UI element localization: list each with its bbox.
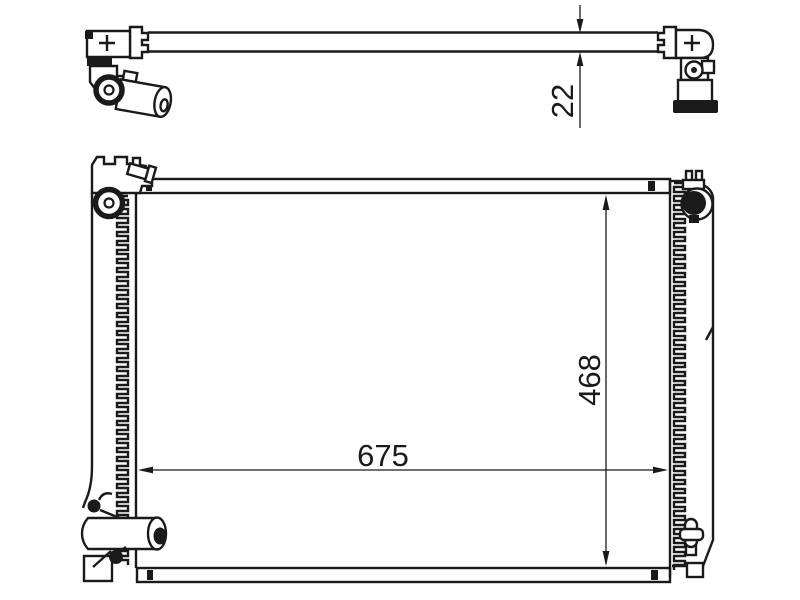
arrow-up-icon: [577, 52, 584, 66]
clip-bolt: [88, 500, 101, 513]
drawing-svg: 22: [0, 0, 800, 600]
header-clip: [147, 570, 153, 580]
top-profile-view: 22: [85, 5, 718, 128]
bracket-dark-band: [87, 57, 112, 66]
arrow-left-icon: [138, 467, 153, 474]
arrow-down-icon: [577, 19, 584, 33]
mounting-bracket-top-left: [92, 157, 156, 217]
thickness-label: 22: [545, 84, 580, 118]
bracket-corner-block: [85, 31, 93, 39]
left-flange: [130, 27, 148, 58]
right-flange: [658, 27, 676, 58]
hose-pipe: [116, 71, 175, 119]
right-filler-fitting: [658, 27, 718, 113]
cap-bracket: [683, 171, 704, 189]
height-label: 468: [572, 354, 607, 406]
core-profile: [148, 33, 658, 52]
dimension-thickness: 22: [545, 5, 583, 128]
width-label: 675: [357, 438, 409, 473]
filler-cap-profile: [673, 100, 718, 113]
dimension-width: 675: [138, 438, 668, 473]
filler-body: [678, 80, 712, 102]
front-view: 675 468: [82, 157, 713, 582]
neck-tab: [702, 61, 714, 73]
outlet-bolt: [109, 550, 123, 564]
arrow-up-icon: [603, 195, 610, 210]
tank-foot: [687, 563, 703, 577]
core-fin-strip-left: [117, 196, 128, 565]
radiator-technical-drawing: 22: [0, 0, 800, 600]
grommet-hole: [105, 199, 114, 208]
top-header: [137, 179, 670, 193]
pipe-ring-hole: [105, 86, 114, 95]
arrow-down-icon: [603, 551, 610, 566]
neck-port-center: [691, 67, 697, 73]
header-clip: [648, 181, 655, 191]
arrow-right-icon: [653, 467, 668, 474]
outlet-opening: [154, 528, 167, 545]
bottom-header: [137, 568, 670, 582]
dimension-height: 468: [572, 195, 609, 566]
outlet-cylinder: [82, 518, 157, 549]
left-inlet-fitting: [85, 27, 175, 118]
core-fin-strip-right: [674, 183, 685, 570]
clip-hook: [99, 493, 112, 500]
outlet-base-block: [84, 556, 112, 581]
left-tank-edge: [83, 192, 92, 508]
header-clip: [651, 570, 658, 580]
